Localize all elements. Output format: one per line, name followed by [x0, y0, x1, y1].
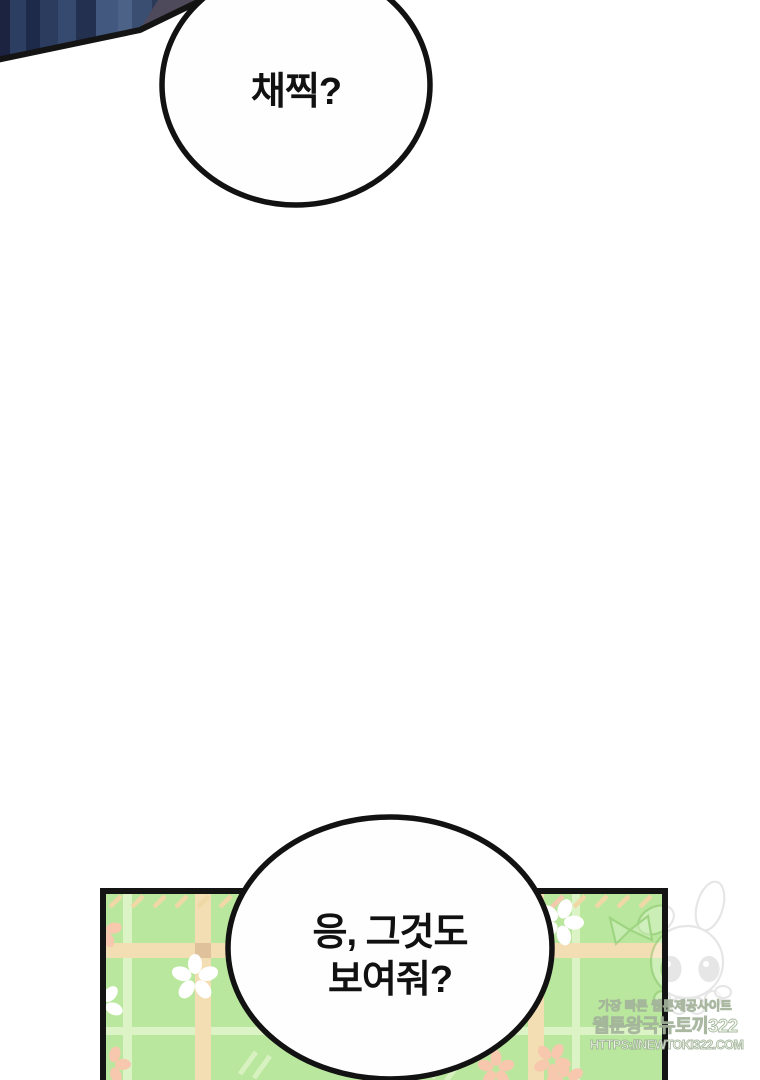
webtoon-page: 채찍?	[0, 0, 760, 1080]
pale-stripe-vertical-left	[123, 894, 132, 1080]
site-watermark: 가장 빠른 웹툰제공사이트 웹툰왕국뉴토끼322 HTTPS://NEWTOKI…	[590, 999, 740, 1052]
speech-bubble-bottom-line2: 보여줘?	[240, 957, 540, 1004]
speech-bubble-bottom-line1: 응, 그것도	[240, 910, 540, 957]
speech-bubble-top-text: 채찍?	[176, 71, 416, 113]
watermark-url: HTTPS://NEWTOKI322.COM	[590, 1038, 740, 1052]
mascot-right-gray-half	[610, 880, 731, 1014]
watermark-tagline: 가장 빠른 웹툰제공사이트	[590, 999, 740, 1013]
watermark-sitename: 웹툰왕국뉴토끼322	[590, 1015, 740, 1036]
speech-bubble-bottom-text: 응, 그것도 보여줘?	[240, 910, 540, 1004]
